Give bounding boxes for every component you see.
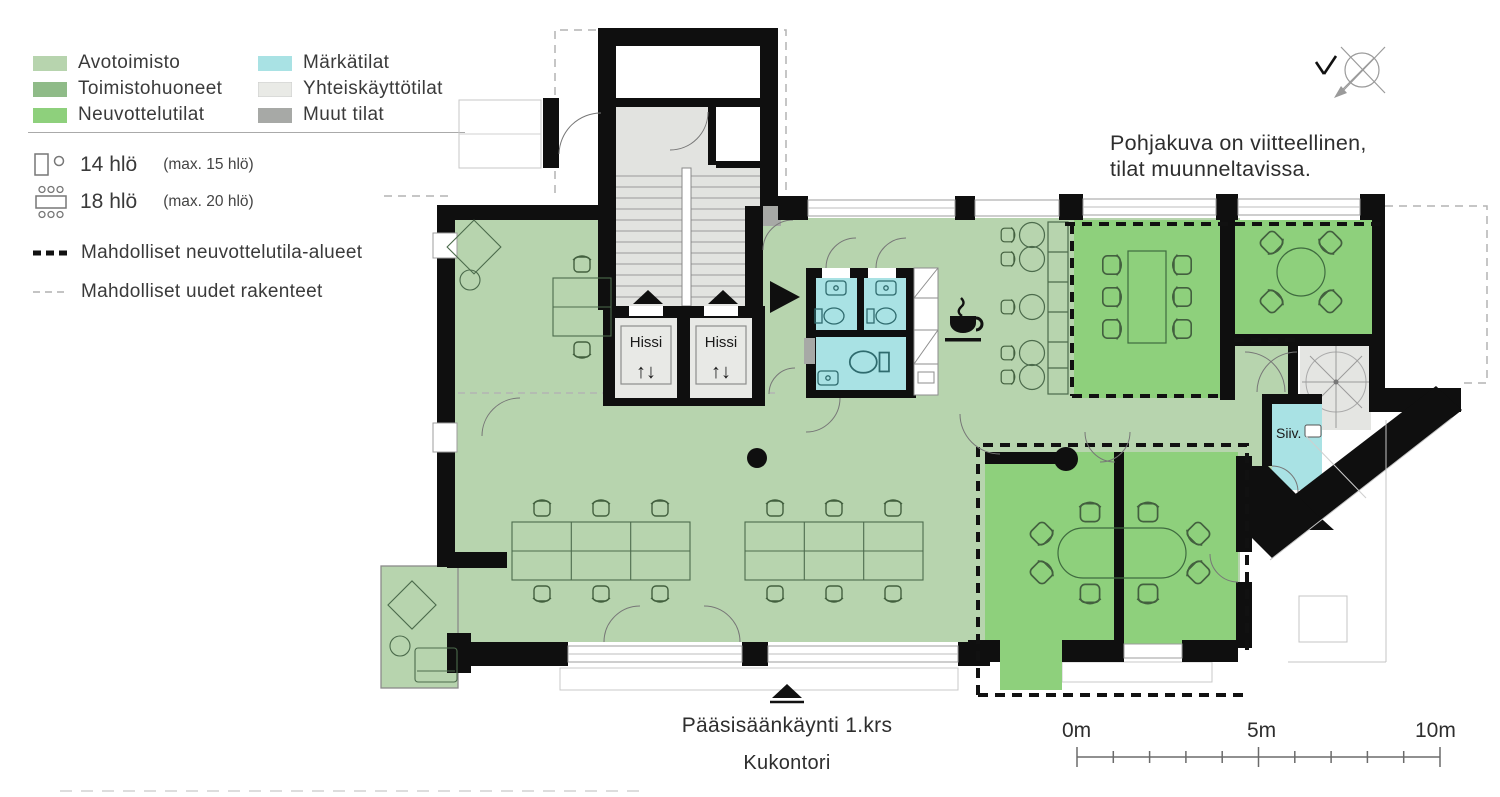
floor-plan-svg: Hissi ↑↓ Hissi ↑↓ bbox=[0, 0, 1500, 797]
meeting-room-1 bbox=[1074, 218, 1235, 400]
floor-plan-page: Avotoimisto Toimistohuoneet Neuvotteluti… bbox=[0, 0, 1500, 797]
sink-icon bbox=[1305, 425, 1321, 437]
elevators: Hissi ↑↓ Hissi ↑↓ bbox=[603, 290, 765, 406]
scale-bar bbox=[1077, 747, 1440, 767]
accessible-wc-room bbox=[816, 337, 906, 390]
north-arrow-icon bbox=[1316, 47, 1385, 98]
door-frame-block bbox=[804, 338, 815, 364]
meeting-room-2 bbox=[1235, 220, 1374, 346]
shaft-closets bbox=[914, 268, 938, 395]
column-dot bbox=[1054, 447, 1078, 471]
bottom-meeting-rooms bbox=[968, 447, 1252, 690]
lounge-alcove bbox=[381, 566, 458, 688]
elevator-label: Hissi bbox=[705, 334, 738, 351]
elevator-arrows-icon: ↑↓ bbox=[711, 361, 731, 383]
cleaning-room-label: Siiv. bbox=[1276, 425, 1301, 441]
column-dot bbox=[747, 448, 767, 468]
entrance-arrow-icon bbox=[770, 684, 804, 702]
elevator-arrows-icon: ↑↓ bbox=[636, 361, 656, 383]
elevator-label: Hissi bbox=[630, 334, 663, 351]
